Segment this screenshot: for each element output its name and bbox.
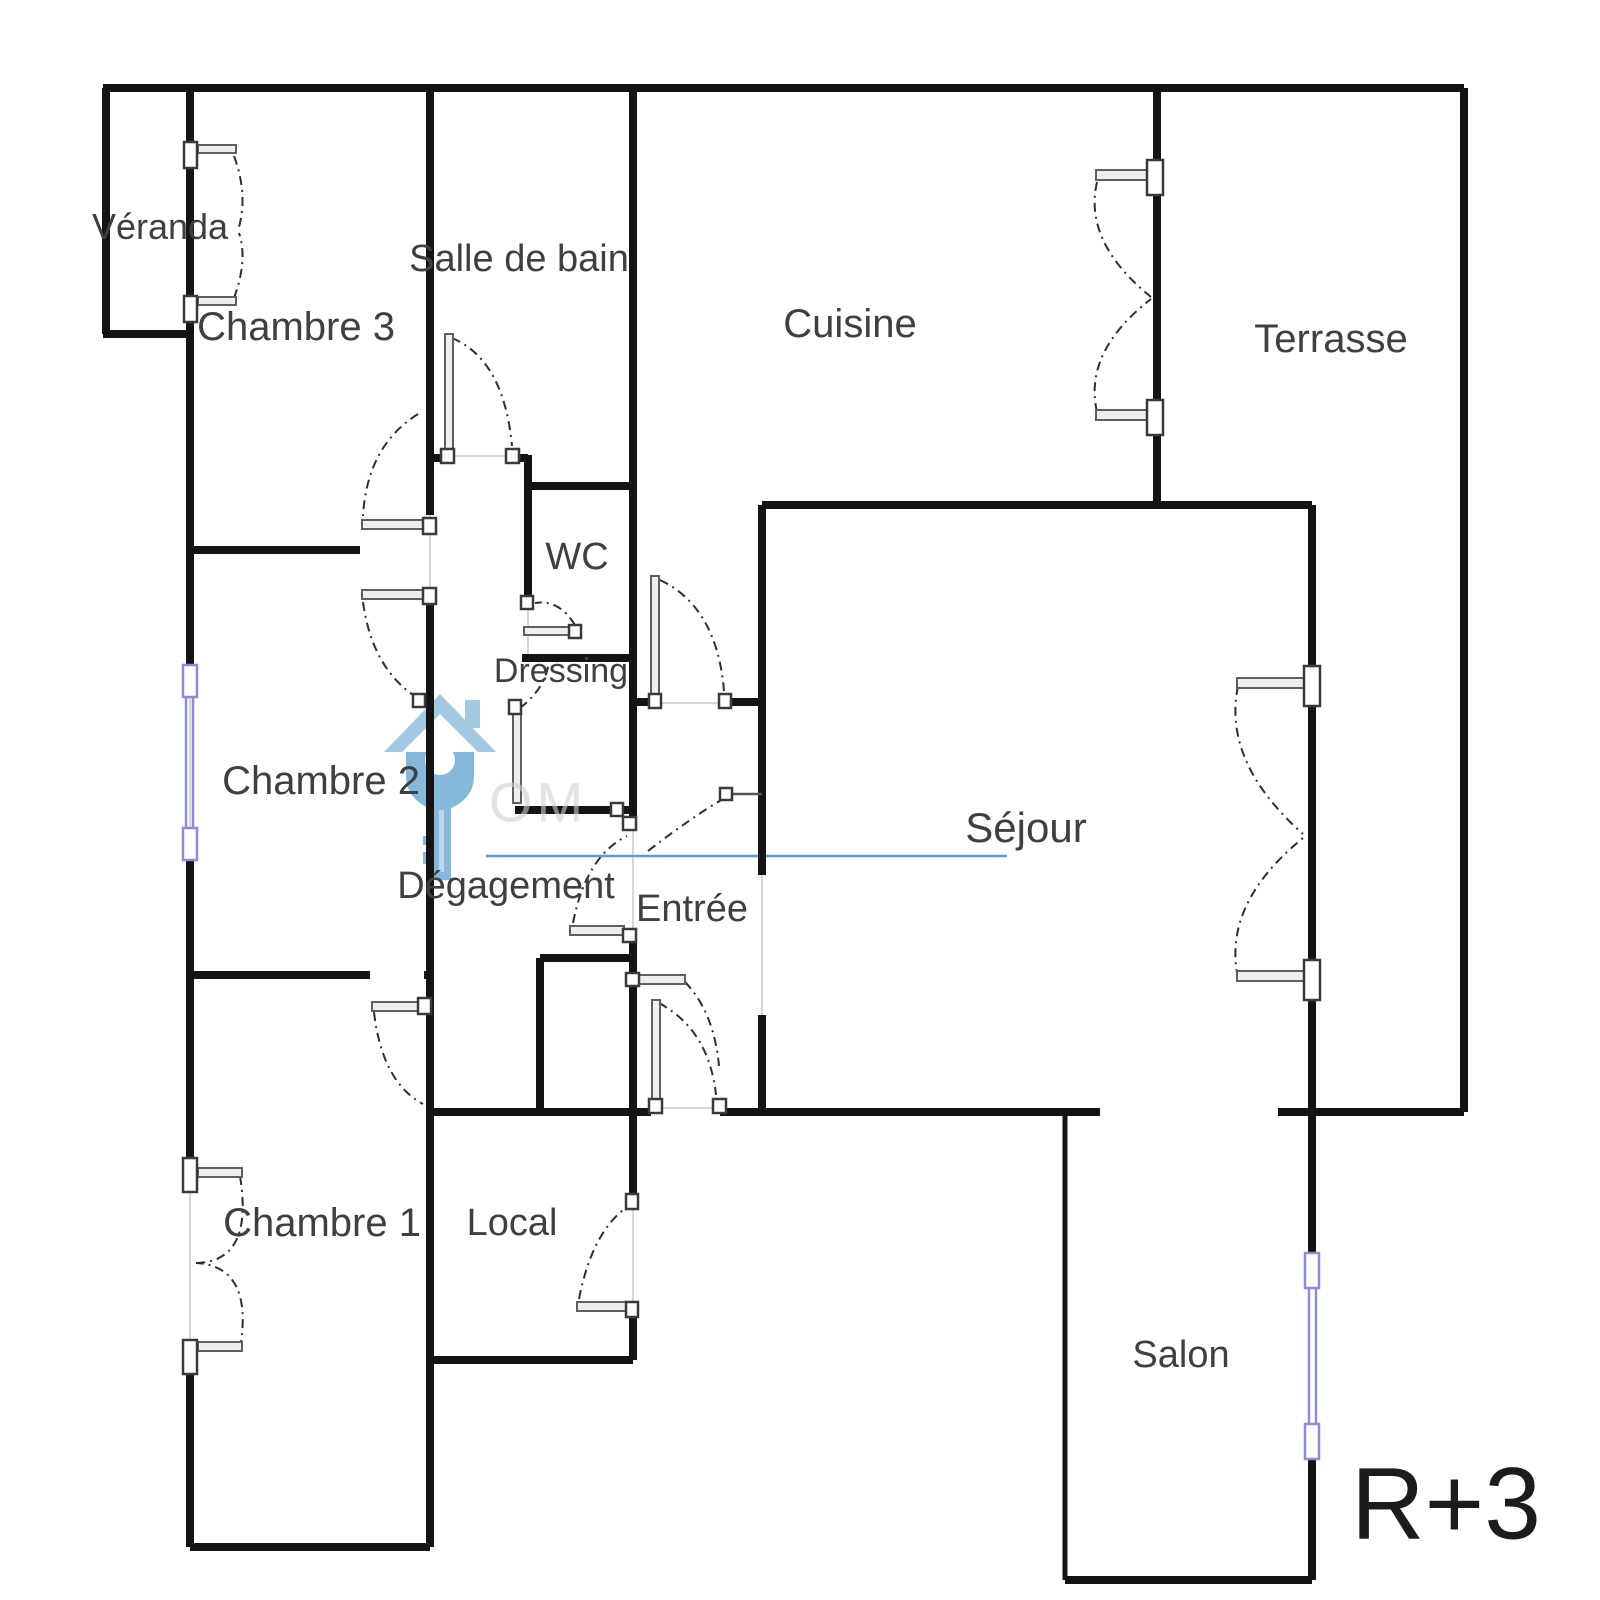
room-label-local: Local	[467, 1204, 558, 1242]
floor-indicator: R+3	[1351, 1446, 1541, 1563]
room-label-chambre-1: Chambre 1	[223, 1203, 421, 1243]
room-label-chambre-2: Chambre 2	[222, 761, 420, 801]
watermark-ghost-text: OM	[489, 770, 587, 835]
room-label-dressing: Dressing	[494, 654, 628, 688]
room-label-cuisine: Cuisine	[783, 304, 916, 344]
room-label-degagement: Dégagement	[397, 867, 615, 905]
room-label-salon: Salon	[1132, 1336, 1229, 1374]
room-label-veranda: Véranda	[92, 209, 228, 245]
floor-plan-page: OM Véranda Chambre 3 Salle de bain Cuisi…	[0, 0, 1600, 1600]
room-label-salle-de-bain: Salle de bain	[409, 240, 629, 278]
room-label-terrasse: Terrasse	[1254, 319, 1407, 359]
room-label-sejour: Séjour	[965, 807, 1086, 849]
room-label-entree: Entrée	[636, 890, 748, 928]
room-label-chambre-3: Chambre 3	[197, 307, 395, 347]
window-rails	[186, 695, 1316, 1428]
room-label-wc: WC	[545, 538, 608, 576]
